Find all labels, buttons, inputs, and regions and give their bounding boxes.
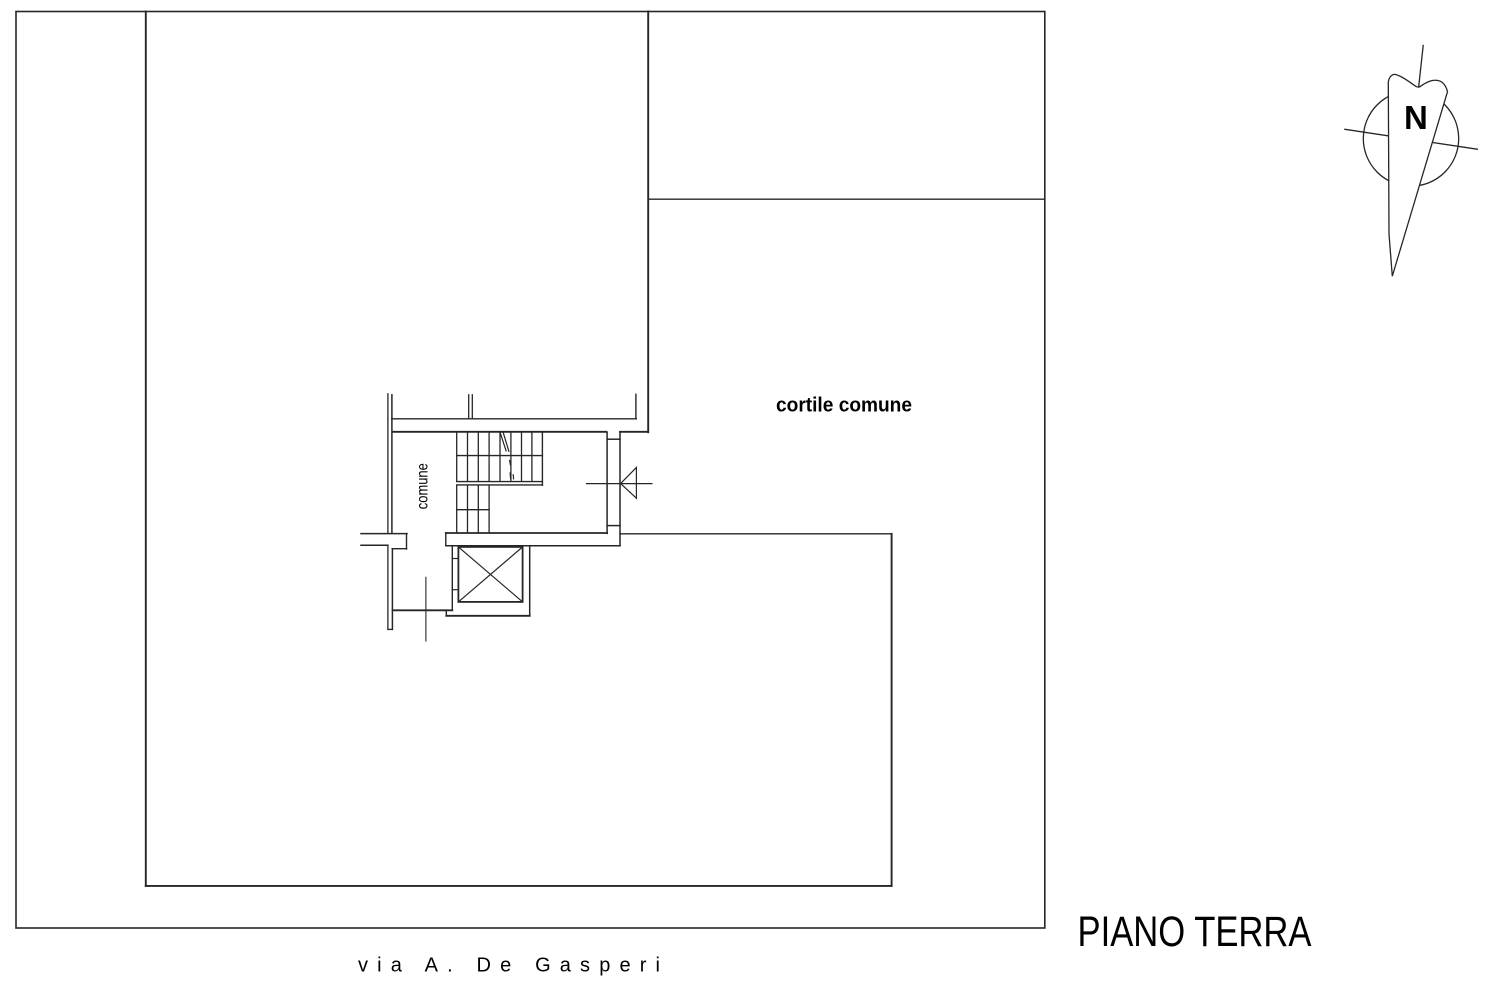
svg-text:via A. De Gasperi: via A. De Gasperi: [358, 954, 666, 976]
svg-text:PIANO TERRA: PIANO TERRA: [1078, 909, 1313, 956]
svg-text:cortile comune: cortile comune: [776, 393, 912, 416]
svg-text:comune: comune: [414, 463, 431, 509]
svg-text:N: N: [1404, 99, 1428, 136]
